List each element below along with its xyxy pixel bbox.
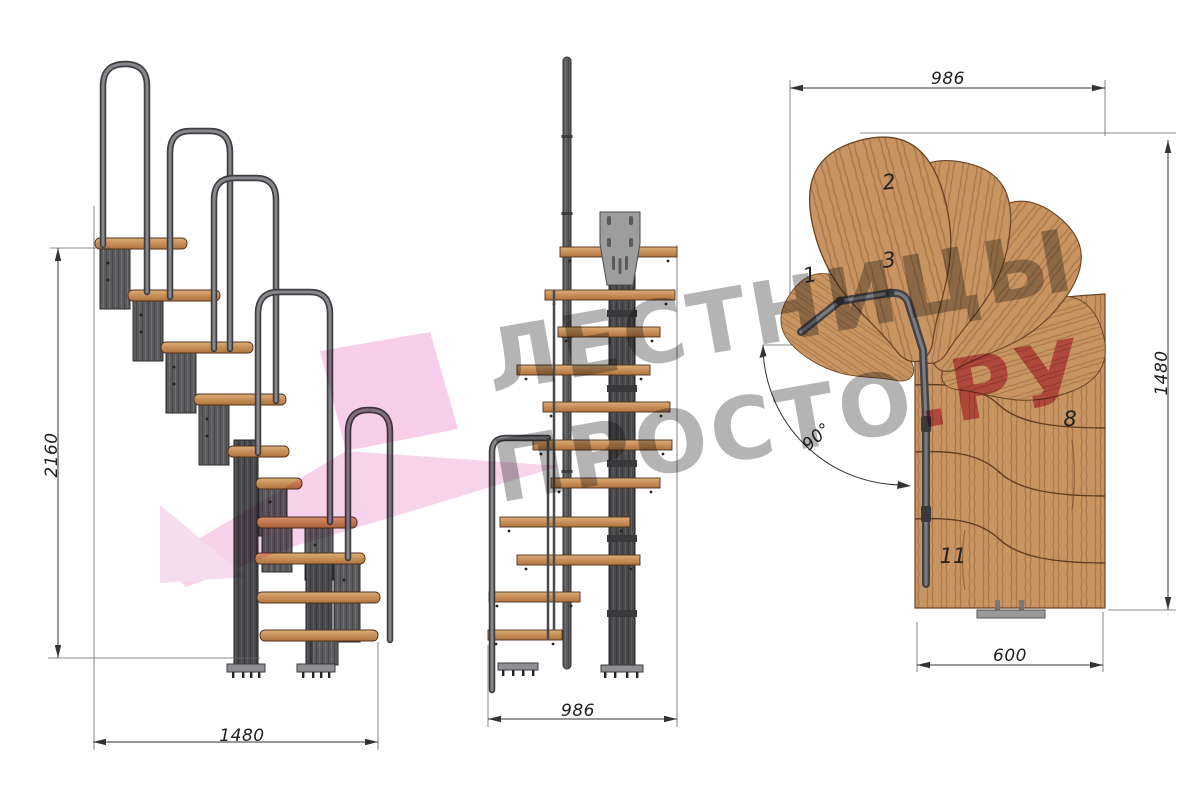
- wall-mount-plate: [600, 212, 640, 285]
- dim-side-height: 2160: [42, 425, 62, 485]
- side-base-bolts: [232, 672, 330, 678]
- dim-plan-bottom-width: 600: [980, 646, 1040, 666]
- dim-side-width: 1480: [212, 726, 272, 746]
- plan-step-label-2: 2: [877, 169, 900, 196]
- dim-plan-top-width: 986: [918, 69, 978, 89]
- front-base-plate-2: [498, 663, 538, 670]
- dim-plan-right-height: 1480: [1152, 343, 1172, 403]
- dim-front-width: 986: [548, 701, 608, 721]
- side-base-plate-2: [297, 664, 335, 672]
- plan-step-label-11: 11: [938, 544, 968, 568]
- side-base-plate: [227, 664, 265, 672]
- front-base-plate: [601, 665, 643, 672]
- staircase-drawing-canvas: 2160 1480 986 986 1480 600 90° 1 2 3 8 1…: [0, 0, 1200, 790]
